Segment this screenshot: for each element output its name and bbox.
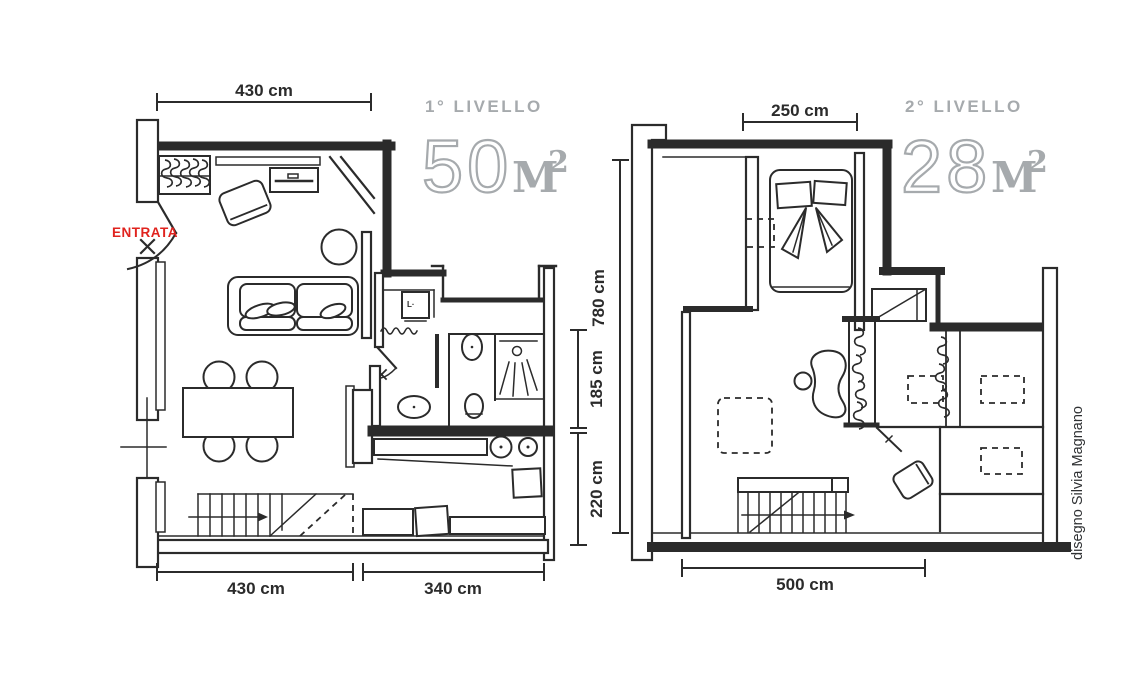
storage-dashed <box>981 448 1022 474</box>
dim-label: 430 cm <box>227 579 285 598</box>
wardrobe-door <box>877 428 901 451</box>
storage-dashed <box>981 376 1024 403</box>
dim-bottom-right: 340 cm <box>363 563 544 598</box>
floorplan-page: ENTRATA <box>0 0 1140 680</box>
shelf <box>216 157 320 165</box>
armchair-2 <box>891 459 935 501</box>
tv-console <box>270 168 318 192</box>
bidet <box>398 396 430 418</box>
pillow <box>776 182 812 208</box>
bench <box>450 517 545 534</box>
dim-bottom-left: 430 cm <box>157 563 353 598</box>
sofa <box>228 277 358 335</box>
dim-label: 780 cm <box>589 269 608 327</box>
level2-area-value: 28 <box>901 125 991 208</box>
level2-plan: 250 cm 780 cm 500 cm 2° LIVELLO 28 M 2 <box>589 97 1066 594</box>
floorplan-canvas: ENTRATA <box>0 0 1140 680</box>
stairs-2 <box>738 478 855 532</box>
pillow <box>813 181 846 205</box>
dining-table <box>183 362 293 462</box>
dim-label: 340 cm <box>424 579 482 598</box>
side-table <box>322 230 357 265</box>
dim-right-upper: 185 cm <box>570 330 606 428</box>
interior-wall <box>362 232 371 338</box>
stairs <box>189 494 353 536</box>
low-cabinet <box>363 509 413 535</box>
dim-label: 185 cm <box>587 350 606 408</box>
kitchen <box>363 431 549 536</box>
level1-area-exponent: 2 <box>548 145 569 180</box>
level1-title: 1° LIVELLO <box>425 97 543 116</box>
dim-bottom: 500 cm <box>682 559 925 594</box>
entrance-label: ENTRATA <box>112 225 178 240</box>
closet-hangers <box>159 156 210 194</box>
armchair <box>217 179 272 228</box>
stairs-direction-arrow <box>189 513 268 522</box>
bed <box>770 170 852 292</box>
roof-window <box>872 289 926 321</box>
wardrobe <box>845 319 1043 531</box>
dim-top: 250 cm <box>743 101 857 131</box>
toilet <box>465 394 483 418</box>
wardrobe-hangers <box>853 328 867 429</box>
dim-label: 250 cm <box>771 101 829 120</box>
desk <box>811 351 845 418</box>
dim-label: 500 cm <box>776 575 834 594</box>
stool <box>795 373 812 390</box>
dim-right-lower: 220 cm <box>570 433 606 545</box>
stool-block <box>415 506 449 536</box>
kitchen-counter <box>374 439 487 455</box>
level1-plan: ENTRATA <box>112 81 606 598</box>
curtain <box>381 328 417 334</box>
washing-machine: L· <box>402 292 429 321</box>
dim-label: 430 cm <box>235 81 293 100</box>
washer-mark: L· <box>407 300 415 309</box>
level1-area-value: 50 <box>422 125 512 208</box>
hob-burners <box>491 437 538 458</box>
credit-text: disegno Silvia Magnano <box>1070 406 1086 560</box>
dim-label: 220 cm <box>587 460 606 518</box>
level2-area-exponent: 2 <box>1027 145 1048 180</box>
skylight-dashed <box>718 398 772 453</box>
kitchen-sink <box>512 468 541 497</box>
shower <box>495 334 543 400</box>
window <box>121 258 166 567</box>
dim-top: 430 cm <box>157 81 371 111</box>
level2-title: 2° LIVELLO <box>905 97 1023 116</box>
